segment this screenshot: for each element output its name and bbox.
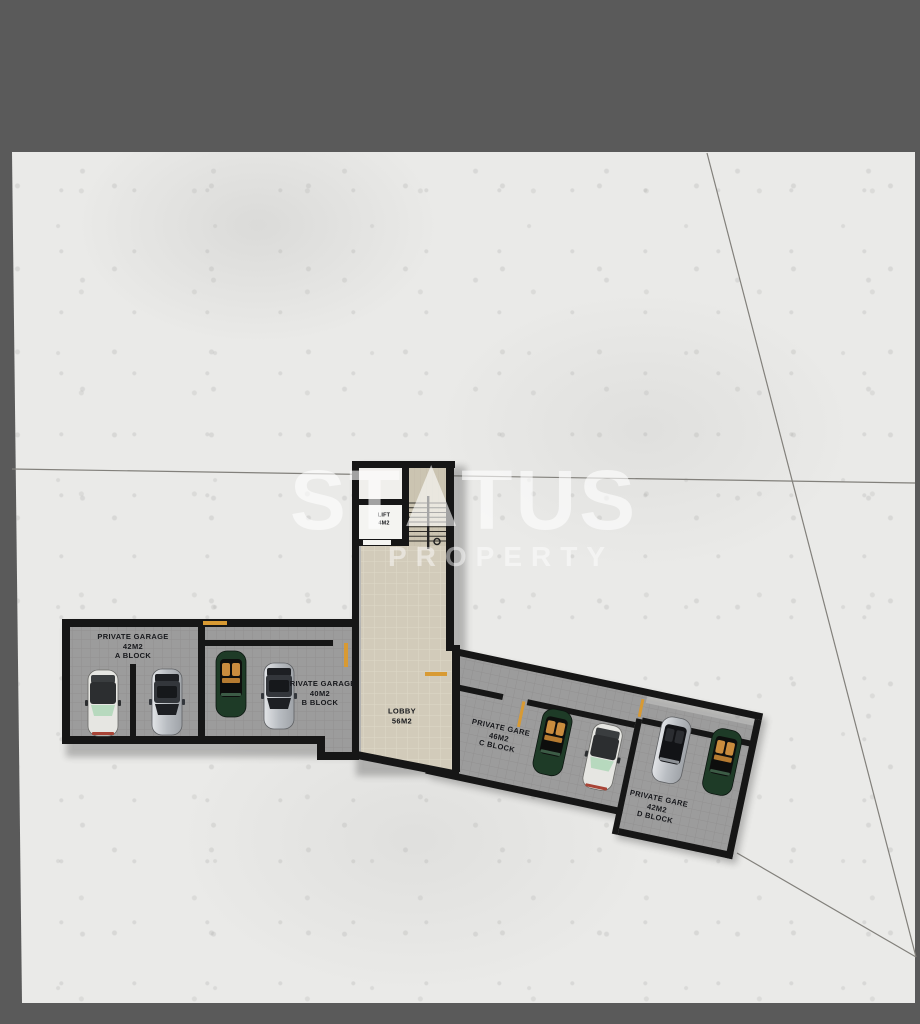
lobby-floor: [361, 546, 452, 770]
garage-a-divider-wall: [130, 664, 136, 742]
lift-label: LIFT 4M2: [378, 514, 390, 527]
garage-b-label: PRIVATE GARAGE 40M2 B BLOCK: [284, 680, 355, 707]
core-structure: [352, 461, 460, 779]
car-silver-sedan-a2: [149, 669, 185, 735]
garage-a-label: PRIVATE GARAGE 42M2 A BLOCK: [97, 633, 168, 660]
car-green-convertible-b1: [216, 651, 246, 717]
floor-plan-drawing: [0, 0, 920, 1024]
garage-a-b-wall: [198, 619, 205, 744]
garage-wing-right: [421, 647, 763, 859]
lift-shaft-room: [359, 468, 402, 499]
car-white-sedan-a1: [85, 670, 121, 736]
stairs-handrail: [427, 496, 429, 549]
lift-door-opening: [363, 540, 391, 545]
floor-plan-page: LIFT 4M2 PRIVATE GARAGE 42M2 A BLOCK PRI…: [0, 0, 920, 1024]
lobby-label: LOBBY 56M2: [388, 708, 416, 725]
